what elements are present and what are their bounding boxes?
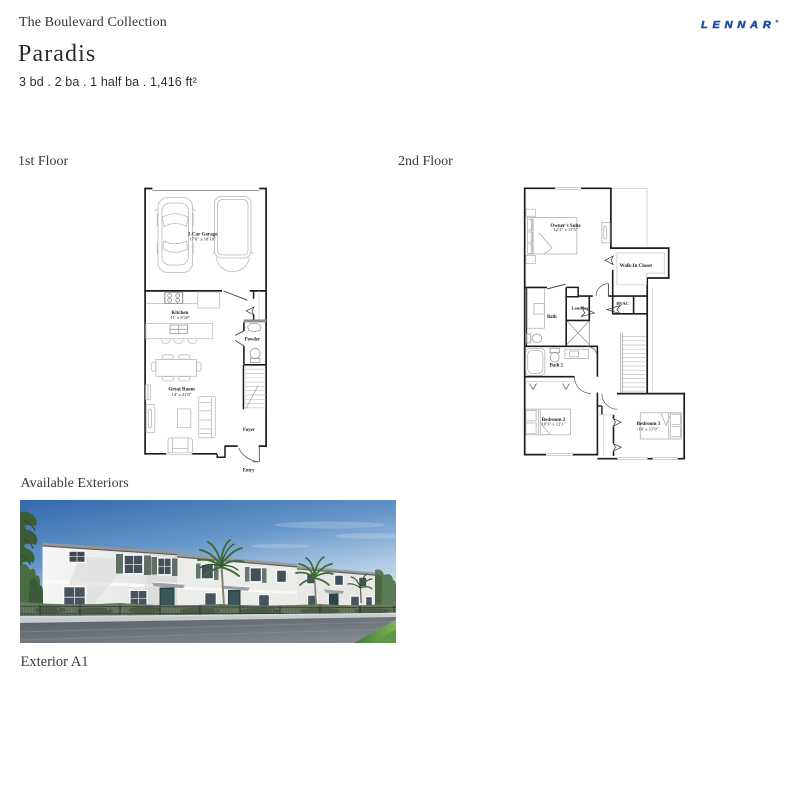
svg-text:10′ x 11′9″: 10′ x 11′9″ (639, 427, 659, 432)
svg-text:Walk-In Closet: Walk-In Closet (620, 264, 653, 269)
svg-text:HVAC: HVAC (616, 301, 628, 306)
svg-text:11′ x 8′10″: 11′ x 8′10″ (170, 315, 190, 320)
svg-text:12′2″ x 13′5″: 12′2″ x 13′5″ (553, 227, 577, 232)
svg-text:Foyer: Foyer (243, 428, 255, 433)
svg-text:Entry: Entry (243, 469, 255, 474)
svg-text:Bath 2: Bath 2 (550, 363, 564, 368)
svg-text:14′ x 21′8″: 14′ x 21′8″ (172, 392, 192, 397)
svg-text:Bath: Bath (547, 315, 557, 320)
svg-text:10′3″ x 12′1″: 10′3″ x 12′1″ (541, 422, 565, 427)
svg-text:17′6″ x 18′10″: 17′6″ x 18′10″ (189, 237, 216, 242)
svg-text:Powder: Powder (245, 338, 260, 343)
